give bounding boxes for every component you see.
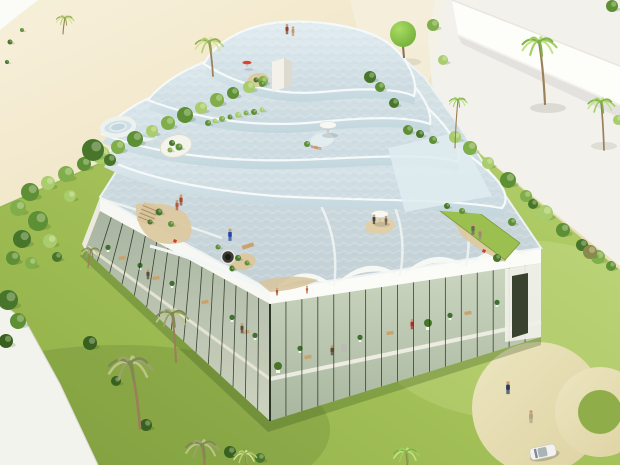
plaza-grass-ring-center (578, 390, 620, 434)
architectural-rendering (0, 0, 620, 465)
car-roof-glass (537, 447, 548, 458)
render-canvas (0, 0, 620, 465)
kitchen-unit (341, 344, 347, 352)
palm-shadow (530, 103, 566, 113)
end-wall-opening (512, 273, 528, 338)
fire-pit-center (225, 254, 231, 260)
